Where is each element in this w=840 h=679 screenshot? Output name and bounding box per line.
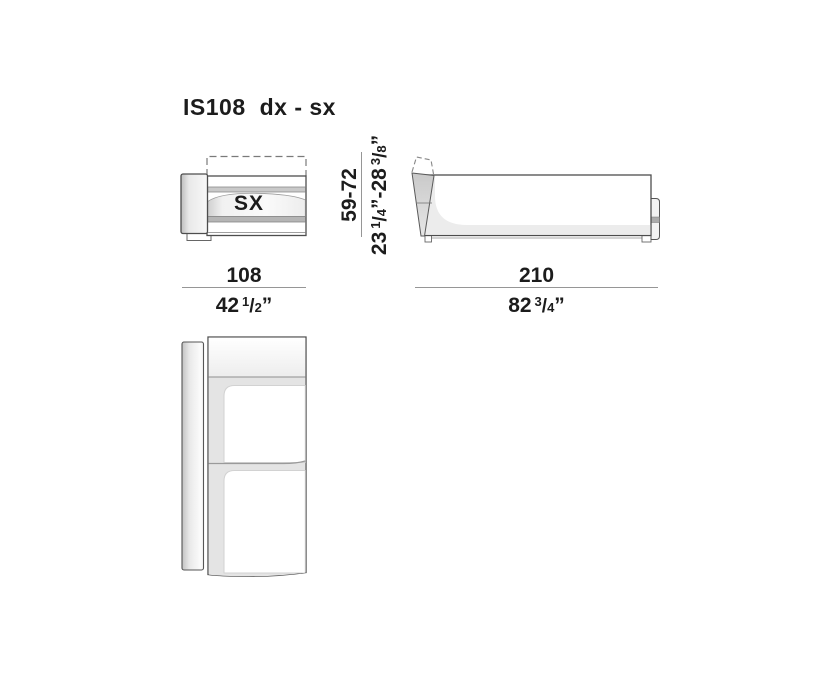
front-lower-band [208,217,306,223]
side-length-inches-value: 823/4” [415,289,658,319]
height-dimension-line [361,153,362,238]
top-view-drawing [175,330,315,585]
height-dimension: 59-72 231/4”-283/8” [339,120,393,270]
side-right-foot [642,236,651,243]
model-code: IS108 [183,94,246,120]
catalog-page: IS108dx - sx SX [0,0,840,679]
front-width-dimension: 108 421/2” [182,265,306,319]
height-inches-value: 231/4”-283/8” [363,120,393,270]
plan-cushion-1 [224,386,305,463]
front-armrest [181,174,208,234]
side-view-drawing [405,146,667,248]
side-length-dimension: 210 823/4” [415,265,658,319]
front-width-dimension-line [182,287,306,288]
front-width-cm-value: 108 [182,265,306,286]
front-backrest-dashed-outline [207,157,306,177]
model-variant: dx - sx [260,94,336,120]
plan-armrest [182,342,204,570]
page-title: IS108dx - sx [183,94,336,121]
side-armrest-tab-band [651,217,660,223]
side-length-cm-value: 210 [415,265,658,286]
height-cm-value: 59-72 [339,120,360,270]
orientation-label: SX [229,192,269,216]
side-left-foot [425,236,432,243]
side-headrest-dashed-outline [412,157,434,174]
side-length-dimension-line [415,287,658,288]
plan-cushion-2 [224,471,305,574]
plan-backrest-band [209,338,306,377]
front-width-inches-value: 421/2” [182,289,306,319]
